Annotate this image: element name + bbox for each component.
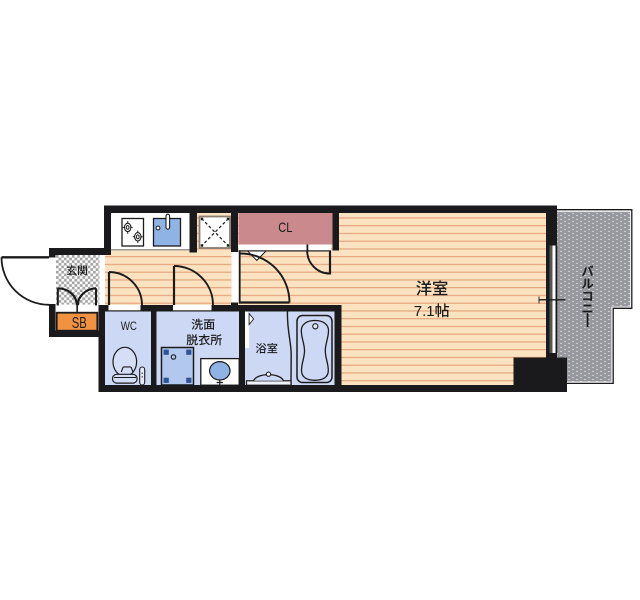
svg-text:CL: CL — [278, 220, 293, 235]
svg-text:WC: WC — [121, 319, 137, 333]
svg-text:7.1: 7.1 — [414, 303, 435, 320]
svg-text:SB: SB — [72, 315, 87, 332]
